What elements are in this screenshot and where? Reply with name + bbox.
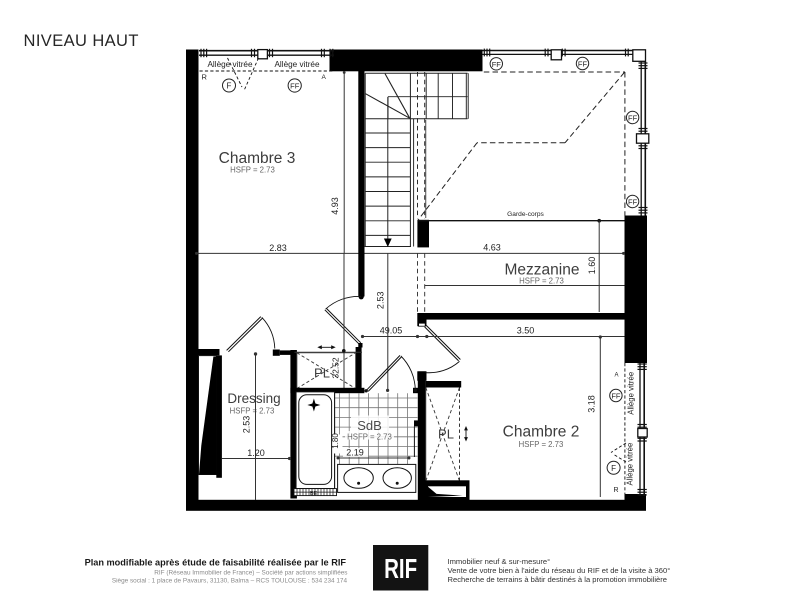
svg-text:R: R xyxy=(614,487,619,494)
svg-text:4.93: 4.93 xyxy=(330,197,340,215)
svg-text:HSFP = 2.73: HSFP = 2.73 xyxy=(519,440,564,449)
svg-text:2.83: 2.83 xyxy=(269,243,287,253)
svg-text:Vente de votre bien à l'aide d: Vente de votre bien à l'aide du réseau d… xyxy=(448,566,671,575)
svg-text:RIF: RIF xyxy=(384,553,417,584)
svg-text:HSFP = 2.73: HSFP = 2.73 xyxy=(519,277,564,286)
svg-text:Allège vitrée: Allège vitrée xyxy=(626,443,635,486)
svg-text:Dressing: Dressing xyxy=(227,391,280,406)
svg-text:F: F xyxy=(611,464,616,473)
svg-text:Allège vitrée: Allège vitrée xyxy=(207,60,253,69)
svg-text:SdB: SdB xyxy=(357,418,382,433)
svg-text:HSFP = 2.73: HSFP = 2.73 xyxy=(230,166,275,175)
svg-text:A: A xyxy=(615,373,619,379)
svg-text:2.53: 2.53 xyxy=(376,292,386,310)
svg-text:Immobilier neuf & sur-mesure°: Immobilier neuf & sur-mesure° xyxy=(448,557,551,566)
svg-text:Recherche de terrains à bâtir: Recherche de terrains à bâtir destinés à… xyxy=(448,575,667,584)
svg-text:F: F xyxy=(227,82,232,91)
svg-text:RIF (Réseau Immobilier de Fran: RIF (Réseau Immobilier de France) – Soci… xyxy=(154,570,347,577)
svg-text:3.50: 3.50 xyxy=(517,326,535,336)
svg-text:32.52: 32.52 xyxy=(331,357,341,379)
svg-text:FF: FF xyxy=(492,60,502,69)
svg-text:Chambre 3: Chambre 3 xyxy=(219,150,296,167)
svg-text:PL: PL xyxy=(314,366,330,381)
svg-text:R: R xyxy=(202,73,208,82)
svg-text:BE: BE xyxy=(310,491,318,497)
svg-text:1.20: 1.20 xyxy=(247,448,265,458)
svg-text:PL: PL xyxy=(438,427,454,442)
svg-text:FF: FF xyxy=(611,392,621,401)
svg-text:FF: FF xyxy=(628,114,638,123)
svg-text:Allège vitrée: Allège vitrée xyxy=(274,60,320,69)
svg-text:1.80: 1.80 xyxy=(331,433,340,449)
svg-text:HSFP = 2.73: HSFP = 2.73 xyxy=(347,433,392,442)
svg-text:FF: FF xyxy=(290,82,300,91)
svg-text:3.18: 3.18 xyxy=(587,395,597,413)
svg-text:Garde-corps: Garde-corps xyxy=(507,211,544,218)
svg-text:1.60: 1.60 xyxy=(587,257,597,275)
svg-text:NIVEAU HAUT: NIVEAU HAUT xyxy=(24,32,139,50)
svg-text:FF: FF xyxy=(628,198,638,207)
svg-text:Siège social : 1 place de Pava: Siège social : 1 place de Pavaurs, 31130… xyxy=(112,578,348,585)
svg-text:4.63: 4.63 xyxy=(483,243,501,253)
svg-text:49.05: 49.05 xyxy=(380,325,403,335)
svg-text:2.53: 2.53 xyxy=(242,416,252,434)
svg-text:A: A xyxy=(322,74,327,81)
svg-text:Plan modifiable après étude de: Plan modifiable après étude de faisabili… xyxy=(85,558,347,568)
svg-text:Chambre 2: Chambre 2 xyxy=(503,424,580,441)
svg-text:2.19: 2.19 xyxy=(346,448,364,458)
svg-text:FF: FF xyxy=(578,60,588,69)
svg-text:HSFP = 2.73: HSFP = 2.73 xyxy=(230,407,275,416)
svg-text:Allège vitrée: Allège vitrée xyxy=(627,372,636,415)
